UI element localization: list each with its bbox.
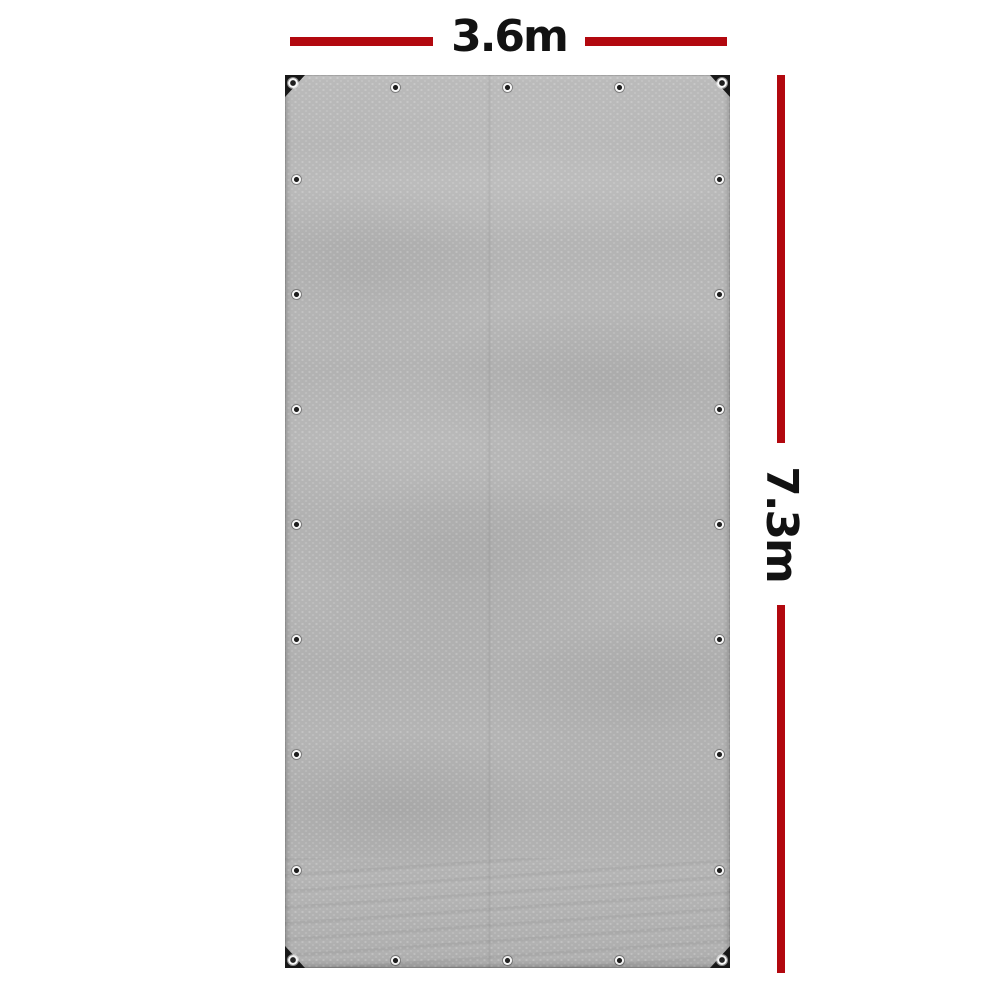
grommet bbox=[715, 175, 724, 184]
corner-grommet bbox=[717, 955, 727, 965]
width-dimension-line-right bbox=[585, 37, 727, 46]
grommet bbox=[615, 956, 624, 965]
grommet bbox=[503, 83, 512, 92]
width-dimension-line-left bbox=[290, 37, 433, 46]
tarp bbox=[285, 75, 730, 968]
grommet bbox=[292, 290, 301, 299]
grommet bbox=[391, 956, 400, 965]
corner-grommet bbox=[717, 78, 727, 88]
grommet bbox=[503, 956, 512, 965]
grommet bbox=[292, 750, 301, 759]
grommet bbox=[615, 83, 624, 92]
corner-grommet bbox=[288, 955, 298, 965]
height-dimension-label: 7.3m bbox=[757, 444, 805, 604]
width-dimension-label: 3.6m bbox=[433, 9, 585, 65]
grommet bbox=[715, 866, 724, 875]
product-figure: 3.6m 7.3m bbox=[0, 0, 1000, 1000]
grommet bbox=[391, 83, 400, 92]
grommet bbox=[715, 405, 724, 414]
height-dimension-line-bottom bbox=[777, 605, 785, 973]
grommet bbox=[715, 290, 724, 299]
grommet bbox=[715, 750, 724, 759]
corner-grommet bbox=[288, 78, 298, 88]
height-dimension-line-top bbox=[777, 75, 785, 443]
grommet bbox=[715, 520, 724, 529]
grommet bbox=[715, 635, 724, 644]
grommet bbox=[292, 520, 301, 529]
grommet bbox=[292, 866, 301, 875]
grommet bbox=[292, 175, 301, 184]
grommet bbox=[292, 635, 301, 644]
grommet bbox=[292, 405, 301, 414]
